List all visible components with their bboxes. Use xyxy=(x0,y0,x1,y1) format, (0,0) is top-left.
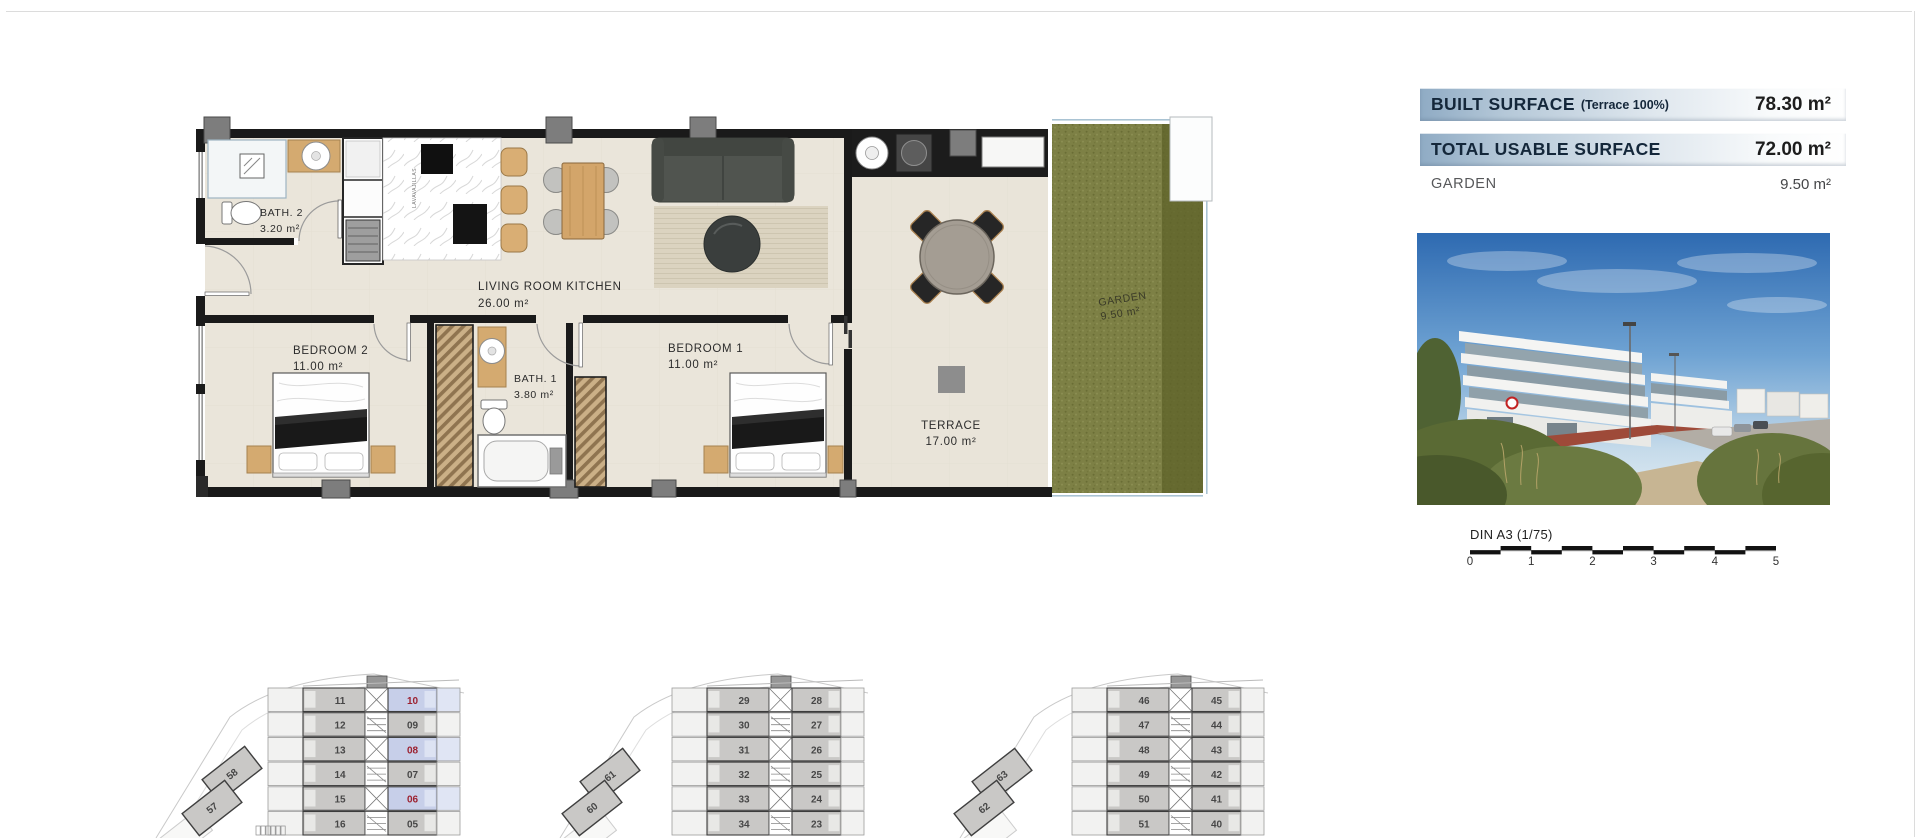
unit-number-left: 13 xyxy=(334,745,346,756)
built-surface-row: BUILT SURFACE (Terrace 100%) 78.30 m² xyxy=(1420,88,1846,121)
unit-number-left: 51 xyxy=(1138,819,1150,830)
balcony-right xyxy=(437,812,460,836)
bath1-label: BATH. 1 xyxy=(514,373,557,385)
balcony-right xyxy=(437,737,460,761)
unit-number-right: 28 xyxy=(811,696,823,707)
terrace-label: TERRACE xyxy=(921,420,981,432)
terrace-planter xyxy=(938,366,965,393)
balcony-left xyxy=(1072,812,1107,836)
built-surface-label: BUILT SURFACE xyxy=(1420,94,1575,115)
unit-number-left: 34 xyxy=(738,819,750,830)
balcony-right xyxy=(1241,688,1264,712)
scale-label: DIN A3 (1/75) xyxy=(1470,527,1553,542)
scale-segment xyxy=(1501,546,1532,550)
unit-number-right: 44 xyxy=(1211,721,1223,732)
scale-segment xyxy=(1654,550,1685,554)
unit-number-right: 43 xyxy=(1211,745,1223,756)
unit-number-left: 29 xyxy=(738,696,750,707)
unit-number-left: 48 xyxy=(1138,745,1150,756)
unit-number-left: 11 xyxy=(335,696,346,707)
scale-tick-label: 2 xyxy=(1589,556,1595,568)
scale-segment xyxy=(1562,546,1593,550)
garden-area xyxy=(1052,116,1230,500)
balcony-right xyxy=(841,762,864,786)
bedroom1-area: 11.00 m² xyxy=(668,359,718,371)
unit-number-left: 31 xyxy=(738,745,750,756)
usable-surface-label: TOTAL USABLE SURFACE xyxy=(1420,139,1661,160)
keyplan-1: 5857111012091308140715061605 xyxy=(140,660,476,838)
unit-number-left: 46 xyxy=(1138,696,1150,707)
sheet-frame-top xyxy=(6,11,1912,12)
kitchen-island xyxy=(453,204,487,244)
balcony-left xyxy=(672,787,707,811)
balcony-right xyxy=(437,787,460,811)
unit-number-right: 25 xyxy=(811,770,823,781)
unit-number-left: 16 xyxy=(334,819,346,830)
balcony-right xyxy=(437,688,460,712)
balcony-right xyxy=(1241,812,1264,836)
usable-surface-row: TOTAL USABLE SURFACE 72.00 m² xyxy=(1420,133,1846,166)
usable-surface-value: 72.00 m² xyxy=(1755,139,1846,161)
balcony-right xyxy=(1241,762,1264,786)
balcony-left xyxy=(672,688,707,712)
balcony-left xyxy=(268,713,303,737)
balcony-left xyxy=(268,737,303,761)
scale-tick-label: 4 xyxy=(1712,556,1718,568)
bath2-area: 3.20 m² xyxy=(260,223,300,235)
scale-segment xyxy=(1470,550,1501,554)
unit-number-right: 10 xyxy=(407,696,419,707)
unit-number-right: 40 xyxy=(1211,819,1223,830)
balcony-left xyxy=(1072,787,1107,811)
balcony-right xyxy=(841,713,864,737)
unit-number-right: 27 xyxy=(811,721,823,732)
balcony-right xyxy=(1241,713,1264,737)
garden-surface-value: 9.50 m² xyxy=(1780,176,1846,193)
balcony-right xyxy=(841,812,864,836)
unit-number-left: 14 xyxy=(334,770,346,781)
unit-number-left: 33 xyxy=(738,795,750,806)
balcony-left xyxy=(672,762,707,786)
balcony-right xyxy=(1241,737,1264,761)
balcony-right xyxy=(841,688,864,712)
living-label: LIVING ROOM KITCHEN xyxy=(478,281,622,293)
unit-number-right: 23 xyxy=(811,819,823,830)
unit-number-left: 47 xyxy=(1138,721,1150,732)
built-surface-value: 78.30 m² xyxy=(1755,94,1846,116)
unit-number-left: 49 xyxy=(1138,770,1150,781)
scale-tick-label: 3 xyxy=(1650,556,1656,568)
terrace-area: 17.00 m² xyxy=(926,436,977,448)
balcony-left xyxy=(1072,762,1107,786)
unit-number-left: 15 xyxy=(334,795,346,806)
unit-number-right: 26 xyxy=(811,745,823,756)
balcony-left xyxy=(1072,688,1107,712)
storage-box xyxy=(982,137,1044,167)
balcony-left xyxy=(1072,713,1107,737)
bath2-label: BATH. 2 xyxy=(260,207,303,219)
unit-number-right: 41 xyxy=(1211,795,1223,806)
balcony-left xyxy=(672,812,707,836)
balcony-right xyxy=(437,713,460,737)
bath1-area: 3.80 m² xyxy=(514,389,554,401)
scale-segment xyxy=(1592,550,1623,554)
bedroom1-label: BEDROOM 1 xyxy=(668,343,743,355)
unit-number-right: 42 xyxy=(1211,770,1223,781)
keyplan-3: 6362464547444843494250415140 xyxy=(944,660,1280,838)
balcony-left xyxy=(672,737,707,761)
balcony-left xyxy=(268,762,303,786)
balcony-right xyxy=(841,787,864,811)
floorplan-drawing: LAVAVAJILLAS xyxy=(196,116,1230,500)
bar-stools xyxy=(501,148,527,252)
balcony-left xyxy=(1072,737,1107,761)
balcony-right xyxy=(841,737,864,761)
garden-white-box xyxy=(1170,117,1212,201)
scale-numbers: 012345 xyxy=(1467,556,1787,570)
range-hood xyxy=(421,144,453,174)
building-sign xyxy=(1507,398,1518,409)
scale-segment xyxy=(1531,550,1562,554)
unit-number-right: 08 xyxy=(407,745,419,756)
hall-closet xyxy=(343,138,383,264)
built-surface-sublabel: (Terrace 100%) xyxy=(1581,98,1669,112)
living-area: 26.00 m² xyxy=(478,298,529,310)
scale-tick-label: 1 xyxy=(1528,556,1534,568)
sheet-frame-right xyxy=(1914,11,1915,837)
balcony-left xyxy=(268,688,303,712)
unit-number-left: 32 xyxy=(738,770,750,781)
unit-number-right: 45 xyxy=(1211,696,1223,707)
unit-number-right: 06 xyxy=(407,795,419,806)
garden-surface-row: GARDEN 9.50 m² xyxy=(1420,170,1846,198)
scale-segment xyxy=(1623,546,1654,550)
unit-number-right: 05 xyxy=(407,819,419,830)
unit-number-right: 24 xyxy=(811,795,823,806)
scale-segment xyxy=(1745,546,1776,550)
garden-surface-label: GARDEN xyxy=(1420,176,1497,192)
scale-segment xyxy=(1684,546,1715,550)
unit-number-left: 12 xyxy=(334,721,346,732)
building-photo xyxy=(1417,233,1830,505)
corridor-wardrobe xyxy=(436,325,473,487)
kitchen: LAVAVAJILLAS xyxy=(383,138,527,260)
bedroom2-area: 11.00 m² xyxy=(293,361,343,373)
unit-number-left: 30 xyxy=(738,721,750,732)
sofa xyxy=(652,138,794,202)
appliance-label: LAVAVAJILLAS xyxy=(412,168,418,208)
balcony-right xyxy=(1241,787,1264,811)
rug-coffee-table xyxy=(654,206,828,288)
scale-segment xyxy=(1715,550,1746,554)
bedroom1-wardrobe xyxy=(575,377,606,487)
balcony-left xyxy=(268,787,303,811)
balcony-left xyxy=(672,713,707,737)
unit-number-right: 09 xyxy=(407,721,419,732)
keyplan-2: 6160292830273126322533243423 xyxy=(544,660,880,838)
scale-tick-label: 5 xyxy=(1773,556,1779,568)
scale-tick-label: 0 xyxy=(1467,556,1473,568)
unit-number-left: 50 xyxy=(1138,795,1150,806)
balcony-right xyxy=(437,762,460,786)
bedroom2-label: BEDROOM 2 xyxy=(293,345,368,357)
terrace-dining-set xyxy=(909,209,1006,306)
unit-number-right: 07 xyxy=(407,770,419,781)
